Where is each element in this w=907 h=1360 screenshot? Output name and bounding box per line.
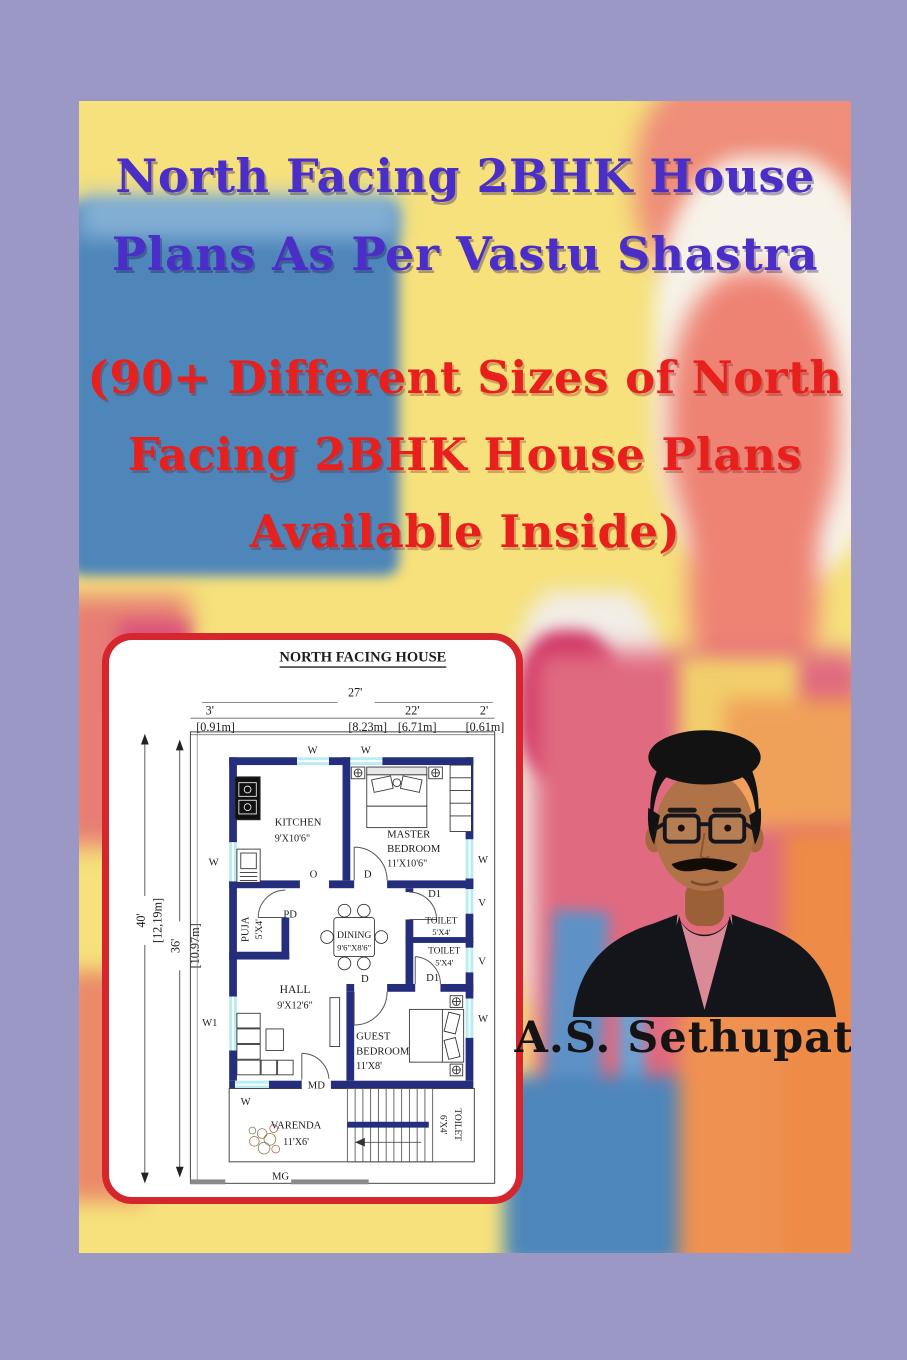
author-eyebrow-left xyxy=(668,808,697,813)
window-marker-kitchen: W xyxy=(209,857,220,869)
door-marker-guest: D xyxy=(361,973,369,985)
opening-marker: O xyxy=(310,868,318,880)
gate-post-right xyxy=(291,1179,369,1184)
left-dimension-lines xyxy=(145,740,180,1178)
hall-size: 9'X12'6" xyxy=(277,1000,312,1011)
vent-marker-toilet2: V xyxy=(478,955,486,967)
book-cover-page: { "page": {"border_color": "#9c98c6"}, "… xyxy=(0,0,907,1360)
dining-label: DINING xyxy=(337,930,371,941)
lavender-border: North Facing 2BHK House Plans As Per Vas… xyxy=(0,0,907,1360)
door-marker-toilet2: D1 xyxy=(426,972,439,984)
dimension-arrowheads xyxy=(141,734,184,1184)
stair-toilet-label: TOILET xyxy=(453,1109,463,1142)
puja-label: PUJA xyxy=(240,916,252,942)
vent-marker-toilet1: V xyxy=(478,897,486,909)
book-subtitle-line3: Available Inside) xyxy=(79,493,851,570)
master-bedroom-label2: BEDROOM xyxy=(387,843,441,855)
staircase xyxy=(347,1089,432,1162)
kitchen-label: KITCHEN xyxy=(275,817,322,829)
book-subtitle-line1: (90+ Different Sizes of North xyxy=(79,339,851,416)
varenda-size: 11'X6' xyxy=(283,1137,309,1148)
author-photo xyxy=(557,707,851,1017)
book-title: North Facing 2BHK House Plans As Per Vas… xyxy=(79,137,851,293)
plan-heading-underline xyxy=(280,666,447,667)
toilet1-size: 5'X4' xyxy=(432,927,451,937)
top-dimension-lines xyxy=(190,703,494,735)
window-marker-top1: W xyxy=(307,744,318,756)
master-bedroom-size: 11'X10'6" xyxy=(387,859,427,870)
book-title-line1: North Facing 2BHK House xyxy=(79,137,851,215)
window-marker-varenda: W xyxy=(241,1096,252,1108)
plan-heading: NORTH FACING HOUSE xyxy=(279,649,446,665)
guest-bedroom-label2: BEDROOM xyxy=(356,1045,410,1057)
cover-artwork: North Facing 2BHK House Plans As Per Vas… xyxy=(79,101,851,1253)
door-marker-puja: PD xyxy=(283,908,297,920)
main-door-marker: MD xyxy=(308,1079,325,1091)
book-subtitle: (90+ Different Sizes of North Facing 2BH… xyxy=(79,339,851,570)
guest-bedroom-label1: GUEST xyxy=(356,1031,391,1043)
toilet1-label: TOILET xyxy=(425,915,457,925)
toilet2-label: TOILET xyxy=(428,946,460,956)
top-dimension-labels: 27' 3' 22' 2' [0.91m] [8.23m] [6.71m] [0… xyxy=(196,686,504,734)
door-marker-master: D xyxy=(364,868,372,880)
door-marker-toilet1: D1 xyxy=(428,888,441,900)
toilet2-size: 5'X4' xyxy=(435,957,454,967)
book-subtitle-line2: Facing 2BHK House Plans xyxy=(79,416,851,493)
stair-toilet-size: 6'X4' xyxy=(438,1115,448,1135)
dining-size: 9'6"X8'6" xyxy=(337,943,371,953)
dim-total-ft: 27' xyxy=(348,686,362,700)
varenda-label: VARENDA xyxy=(271,1120,322,1132)
dim-right-ft: 2' xyxy=(480,703,488,717)
hall-label: HALL xyxy=(280,983,311,996)
left-dimension-labels: 40' [12,19m] 36' [10.97m] xyxy=(134,898,202,969)
floor-plan-drawing: NORTH FACING HOUSE 27' 3' 22' 2' [0.91m]… xyxy=(109,640,516,1197)
dim-depth-inner-ft: 36' xyxy=(169,939,183,953)
author-eye-left xyxy=(678,825,685,832)
window-marker-master: W xyxy=(478,854,489,866)
puja-size: 5'X4' xyxy=(254,919,265,940)
author-eye-right xyxy=(724,825,731,832)
guest-bedroom-size: 11'X8' xyxy=(356,1061,382,1072)
master-bedroom-label1: MASTER xyxy=(387,828,431,840)
main-gate-marker: MG xyxy=(272,1170,289,1182)
dim-mid-ft: 22' xyxy=(405,703,419,717)
dim-left-ft: 3' xyxy=(206,703,214,717)
kitchen-size: 9'X10'6" xyxy=(275,833,310,844)
author-name: A.S. Sethupathi xyxy=(499,1013,851,1063)
author-eyebrow-right xyxy=(712,808,741,813)
gate-post-left xyxy=(190,1179,225,1184)
author-hair-top xyxy=(648,730,760,784)
window-marker-hall: W1 xyxy=(202,1017,217,1029)
dim-depth-outer-ft: 40' xyxy=(134,913,148,927)
dim-depth-outer-m: [12,19m] xyxy=(150,898,164,943)
window-marker-top2: W xyxy=(361,744,372,756)
book-title-line2: Plans As Per Vastu Shastra xyxy=(79,215,851,293)
floor-plan-card: NORTH FACING HOUSE 27' 3' 22' 2' [0.91m]… xyxy=(102,633,523,1204)
window-marker-guest: W xyxy=(478,1013,489,1025)
